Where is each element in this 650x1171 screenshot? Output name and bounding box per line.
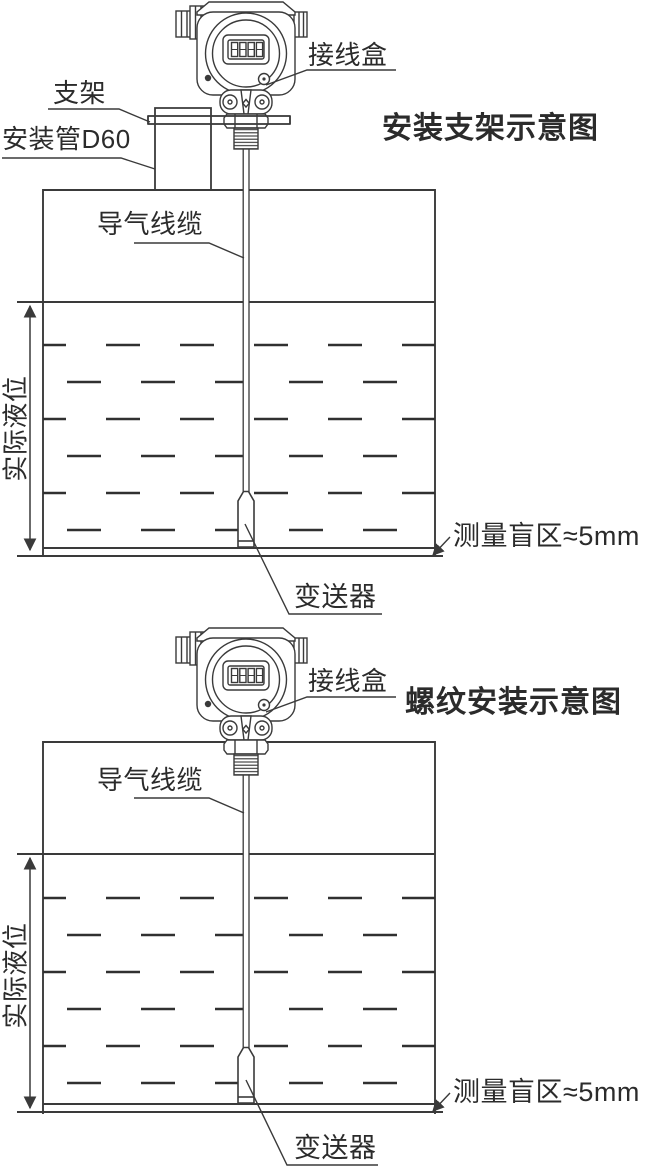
label-junction-box-2: 接线盒 [308, 668, 388, 695]
diagram2-thread-install [17, 628, 450, 1165]
label-transmitter-1: 变送器 [294, 583, 377, 611]
bracket-plate [148, 116, 290, 124]
probe-2 [238, 1048, 254, 1104]
label-air-cable-1: 导气线缆 [97, 211, 203, 238]
tank-2 [17, 742, 443, 1114]
tank-1 [17, 190, 443, 556]
label-transmitter-2: 变送器 [294, 1134, 377, 1162]
label-blind-zone-1: 测量盲区≈5mm [453, 522, 640, 550]
label-junction-box-1: 接线盒 [308, 42, 388, 69]
label-air-cable-2: 导气线缆 [97, 767, 203, 794]
transmitter-head-2 [176, 628, 307, 775]
label-actual-level-1: 实际液位 [2, 375, 29, 483]
label-mounting-pipe: 安装管D60 [2, 126, 131, 153]
diagram1-title: 安装支架示意图 [382, 113, 599, 145]
label-bracket: 支架 [53, 80, 106, 107]
diagram2-title: 螺纹安装示意图 [405, 687, 622, 719]
air-cable-2 [243, 775, 249, 1048]
transmitter-head-1 [176, 2, 307, 149]
label-actual-level-2: 实际液位 [2, 922, 29, 1030]
air-cable-1 [243, 149, 249, 492]
schematic-page: 接线盒 支架 安装支架示意图 安装管D60 导气线缆 实际液位 测量盲区≈5mm… [0, 0, 650, 1171]
label-blind-zone-2: 测量盲区≈5mm [453, 1078, 640, 1106]
